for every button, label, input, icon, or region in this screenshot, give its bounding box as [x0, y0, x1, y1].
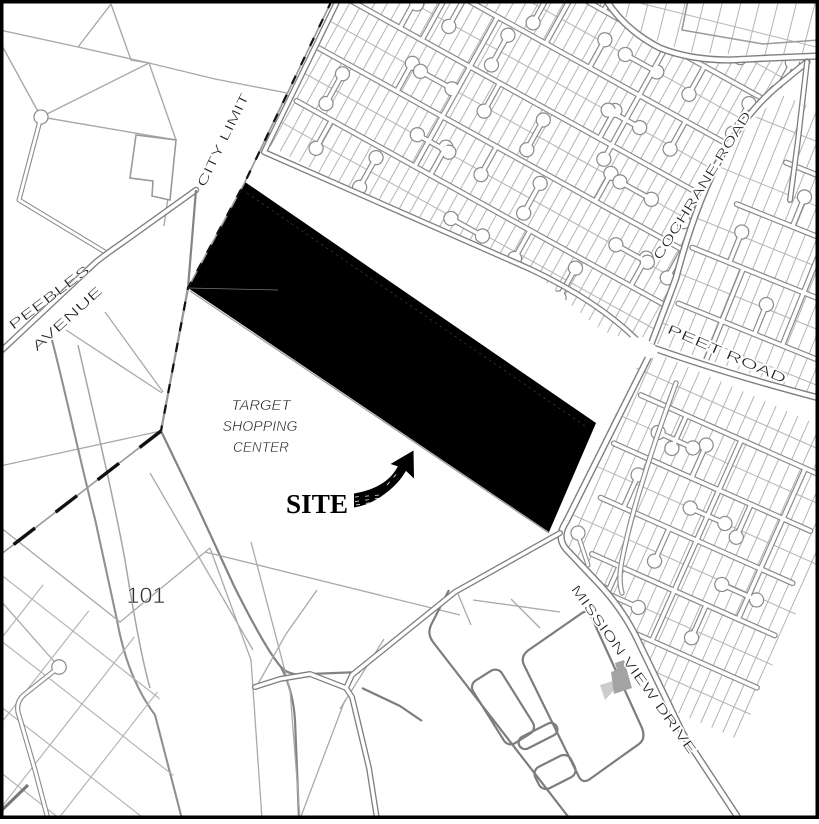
- svg-text:TARGET: TARGET: [232, 397, 293, 414]
- svg-text:101: 101: [127, 583, 166, 608]
- svg-text:CENTER: CENTER: [233, 439, 289, 456]
- svg-text:SHOPPING: SHOPPING: [223, 418, 298, 435]
- svg-text:SITE: SITE: [286, 489, 348, 519]
